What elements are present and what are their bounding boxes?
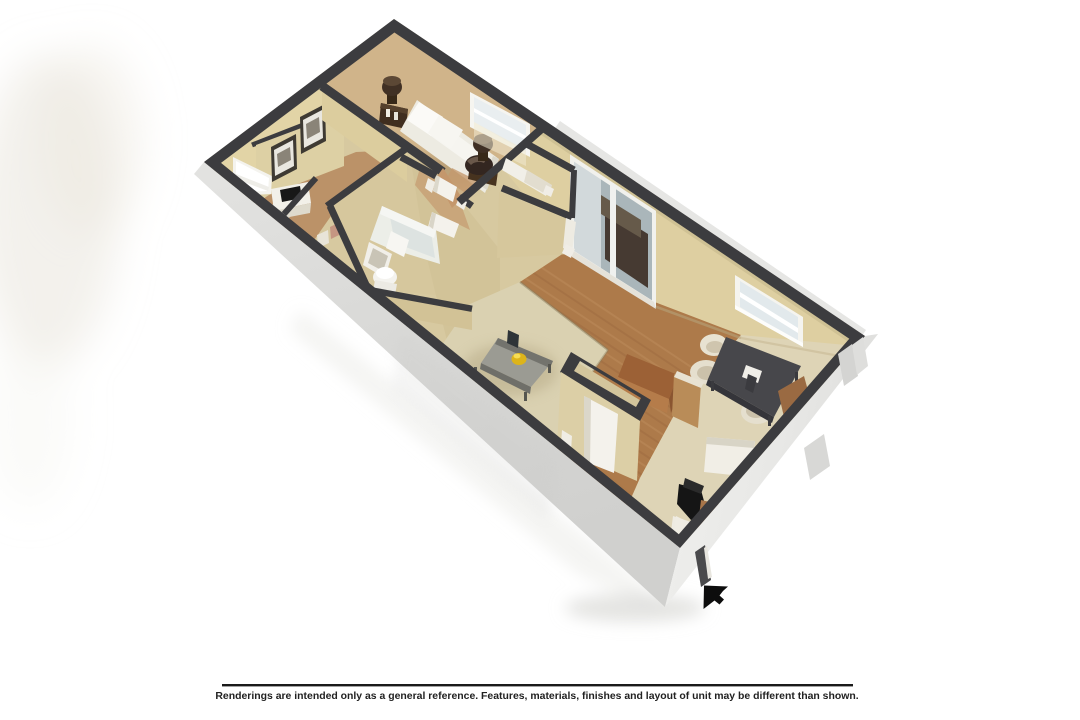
svg-text:Renderings are intended only a: Renderings are intended only as a genera… xyxy=(215,691,858,702)
